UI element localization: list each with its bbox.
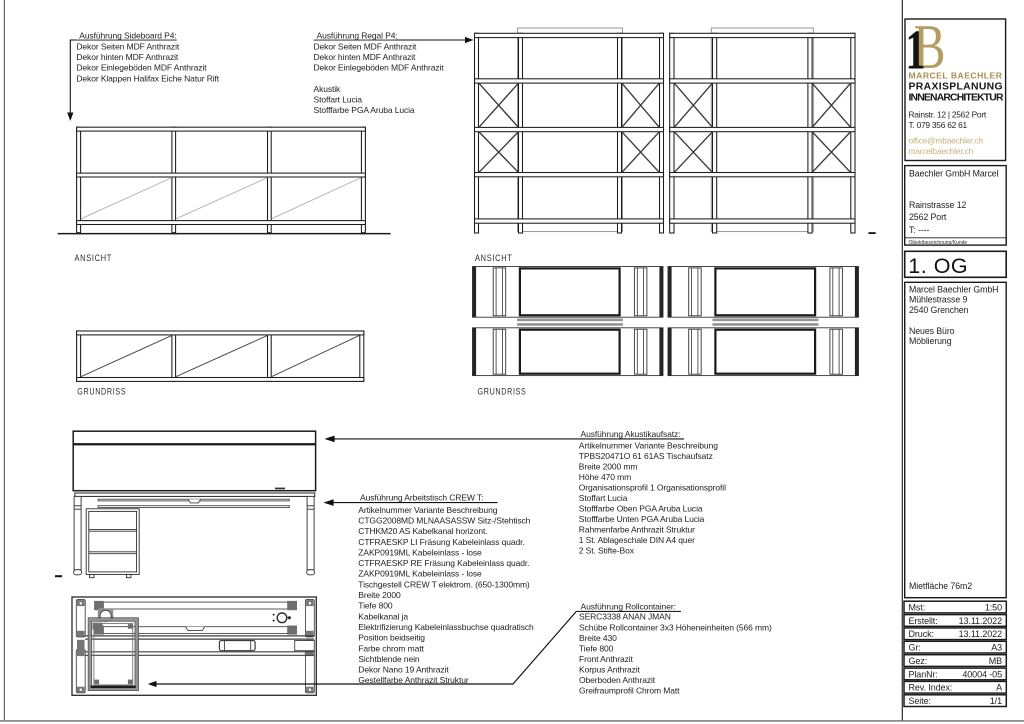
svg-text:ANSICHT: ANSICHT [75, 253, 113, 264]
svg-text:Dekor Einlegeböden MDF Anthraz: Dekor Einlegeböden MDF Anthrazit [76, 63, 207, 73]
svg-text:Stofffarbe PGA Aruba Lucia: Stofffarbe PGA Aruba Lucia [314, 105, 415, 115]
svg-text:Dekor Seiten MDF Anthrazit: Dekor Seiten MDF Anthrazit [314, 41, 417, 51]
svg-text:Tiefe 800: Tiefe 800 [579, 643, 614, 653]
svg-text:1/1: 1/1 [990, 696, 1002, 706]
svg-text:Breite 2000 mm: Breite 2000 mm [579, 462, 638, 472]
svg-text:Dekor Nano 19 Anthrazit: Dekor Nano 19 Anthrazit [358, 665, 449, 675]
svg-text:Farbe chrom matt: Farbe chrom matt [358, 643, 424, 653]
svg-text:13.11.2022: 13.11.2022 [959, 616, 1002, 626]
svg-text:Erstellt:: Erstellt: [909, 616, 938, 626]
svg-text:T: ----: T: ---- [909, 225, 929, 235]
svg-text:Kabelkanal ja: Kabelkanal ja [358, 611, 408, 621]
svg-text:MARCEL BAECHLER: MARCEL BAECHLER [909, 71, 1003, 81]
svg-text:Front Anthrazit: Front Anthrazit [579, 654, 634, 664]
svg-text:Artikelnummer Variante Beschre: Artikelnummer Variante Beschreibung [358, 505, 497, 515]
svg-text:GRUNDRISS: GRUNDRISS [478, 387, 527, 398]
svg-text:office@mbaechler.ch: office@mbaechler.ch [909, 136, 984, 146]
svg-text:Dekor Einlegeböden MDF Anthraz: Dekor Einlegeböden MDF Anthrazit [314, 63, 445, 73]
svg-text:Baechler GmbH Marcel: Baechler GmbH Marcel [909, 168, 999, 178]
svg-text:Stofffarbe Unten PGA Aruba Luc: Stofffarbe Unten PGA Aruba Lucia [579, 514, 705, 524]
svg-text:Stoffart Lucia: Stoffart Lucia [314, 95, 363, 105]
svg-text:Rahmenfarbe Anthrazit Struktur: Rahmenfarbe Anthrazit Struktur [579, 525, 695, 535]
svg-text:Sichtblende nein: Sichtblende nein [358, 654, 420, 664]
svg-text:1 St. Ablageschale DIN A4 quer: 1 St. Ablageschale DIN A4 quer [579, 535, 695, 545]
svg-text:Breite 2000: Breite 2000 [358, 590, 401, 600]
svg-text:Möblierung: Möblierung [909, 336, 952, 346]
svg-text:T. 079 356 62 61: T. 079 356 62 61 [909, 120, 968, 130]
svg-text:Artikelnummer Variante Beschre: Artikelnummer Variante Beschreibung [579, 441, 718, 451]
svg-text:CTFRAESKP RE Fräsung Kabeleinl: CTFRAESKP RE Fräsung Kabeleinlass quadr. [358, 558, 529, 568]
svg-text:Mietfläche 76m2: Mietfläche 76m2 [909, 581, 972, 591]
svg-text:Tischgestell CREW T elektrom.: Tischgestell CREW T elektrom. (650-1300m… [358, 579, 530, 589]
svg-text:Ausführung Sideboard P4:: Ausführung Sideboard P4: [79, 31, 176, 41]
svg-text:13.11.2022: 13.11.2022 [959, 629, 1002, 639]
svg-text:1. OG: 1. OG [908, 254, 968, 278]
svg-text:SERC3338 ANAN JMAN: SERC3338 ANAN JMAN [579, 612, 671, 622]
svg-text:Greifraumprofil Chrom Matt: Greifraumprofil Chrom Matt [579, 686, 680, 696]
svg-text:Ausführung Rollcontainer:: Ausführung Rollcontainer: [581, 601, 676, 611]
svg-text:Tiefe 800: Tiefe 800 [358, 601, 393, 611]
svg-text:ZAKP0919ML Kabeleinlass - lose: ZAKP0919ML Kabeleinlass - lose [358, 569, 482, 579]
svg-text:Druck:: Druck: [909, 629, 934, 639]
svg-text:Gestellfarbe Anthrazit Struktu: Gestellfarbe Anthrazit Struktur [358, 675, 469, 685]
svg-text:2562 Port: 2562 Port [909, 212, 947, 222]
svg-text:Ausführung Arbeitstisch CREW T: Ausführung Arbeitstisch CREW T: [360, 493, 483, 503]
svg-text:2 St. Stifte-Box: 2 St. Stifte-Box [579, 546, 635, 556]
svg-text:INNENARCHITEKTUR: INNENARCHITEKTUR [909, 93, 1004, 104]
svg-text:Rainstrasse 12: Rainstrasse 12 [909, 200, 966, 210]
svg-text:Akustik: Akustik [314, 84, 342, 94]
svg-text:marcelbaechler.ch: marcelbaechler.ch [909, 146, 974, 156]
svg-text:1:50: 1:50 [985, 603, 1002, 613]
svg-text:Korpus Anthrazit: Korpus Anthrazit [579, 665, 641, 675]
svg-text:Marcel Baechler GmbH: Marcel Baechler GmbH [909, 284, 998, 294]
svg-text:Elektrifizierung Kabeleinlassb: Elektrifizierung Kabeleinlassbuchse quad… [358, 622, 534, 632]
svg-text:ZAKP0919ML Kabeleinlass - lose: ZAKP0919ML Kabeleinlass - lose [358, 547, 482, 557]
svg-text:Ausführung Akustikaufsatz:: Ausführung Akustikaufsatz: [581, 429, 681, 439]
svg-text:Rev. Index:: Rev. Index: [909, 683, 953, 693]
svg-text:Mühlestrasse 9: Mühlestrasse 9 [909, 295, 967, 305]
svg-text:Gr:: Gr: [909, 643, 921, 653]
svg-text:40004 -05: 40004 -05 [962, 669, 1002, 679]
svg-text:Seite:: Seite: [909, 696, 931, 706]
svg-text:MB: MB [989, 656, 1002, 666]
svg-text:Neues Büro: Neues Büro [909, 326, 955, 336]
svg-text:TPBS20471O 61 61AS Tischaufsat: TPBS20471O 61 61AS Tischaufsatz [579, 451, 713, 461]
svg-text:Dekor hinten MDF Anthrazit: Dekor hinten MDF Anthrazit [76, 52, 179, 62]
svg-text:Ausführung Regal P4:: Ausführung Regal P4: [317, 31, 398, 41]
svg-text:Dekor hinten MDF Anthrazit: Dekor hinten MDF Anthrazit [314, 52, 417, 62]
svg-text:Rainstr. 12 | 2562 Port: Rainstr. 12 | 2562 Port [909, 110, 987, 120]
svg-text:Mst:: Mst: [909, 603, 926, 613]
svg-text:Breite 430: Breite 430 [579, 633, 617, 643]
svg-text:Gez:: Gez: [909, 656, 928, 666]
svg-text:Dekor Seiten MDF Anthrazit: Dekor Seiten MDF Anthrazit [76, 41, 179, 51]
svg-text:A3: A3 [991, 643, 1002, 653]
svg-text:GRUNDRISS: GRUNDRISS [77, 387, 126, 398]
svg-text:CTGG2008MD MLNAASASSW Sitz-/St: CTGG2008MD MLNAASASSW Sitz-/Stehtisch [358, 516, 530, 526]
svg-text:Schübe Rollcontainer 3x3 Höhen: Schübe Rollcontainer 3x3 Höheneinheiten … [579, 622, 772, 632]
svg-text:Stofffarbe Oben PGA Aruba Luci: Stofffarbe Oben PGA Aruba Lucia [579, 504, 703, 514]
svg-text:Oberboden Anthrazit: Oberboden Anthrazit [579, 675, 656, 685]
svg-text:Dekor Klappen Halifax Eiche Na: Dekor Klappen Halifax Eiche Natur Rift [76, 73, 219, 83]
svg-text:CTHKM20 AS Kabelkanal horizont: CTHKM20 AS Kabelkanal horizont. [358, 526, 487, 536]
svg-text:2540 Grenchen: 2540 Grenchen [909, 305, 969, 315]
svg-text:PlanNr:: PlanNr: [909, 669, 938, 679]
svg-text:Position beidseitig: Position beidseitig [358, 633, 425, 643]
svg-text:PRAXISPLANUNG: PRAXISPLANUNG [909, 82, 1004, 93]
svg-text:Stoffart Lucia: Stoffart Lucia [579, 493, 628, 503]
svg-text:Objektbezeichnung/Kunde: Objektbezeichnung/Kunde [909, 240, 968, 246]
svg-text:Höhe 470 mm: Höhe 470 mm [579, 472, 631, 482]
svg-text:ANSICHT: ANSICHT [475, 253, 513, 264]
svg-text:A: A [996, 683, 1002, 693]
svg-text:Organisationsprofil 1 Organisa: Organisationsprofil 1 Organisationsprofi… [579, 483, 726, 493]
svg-text:CTFRAESKP LI Fräsung Kabeleinl: CTFRAESKP LI Fräsung Kabeleinlass quadr. [358, 537, 524, 547]
